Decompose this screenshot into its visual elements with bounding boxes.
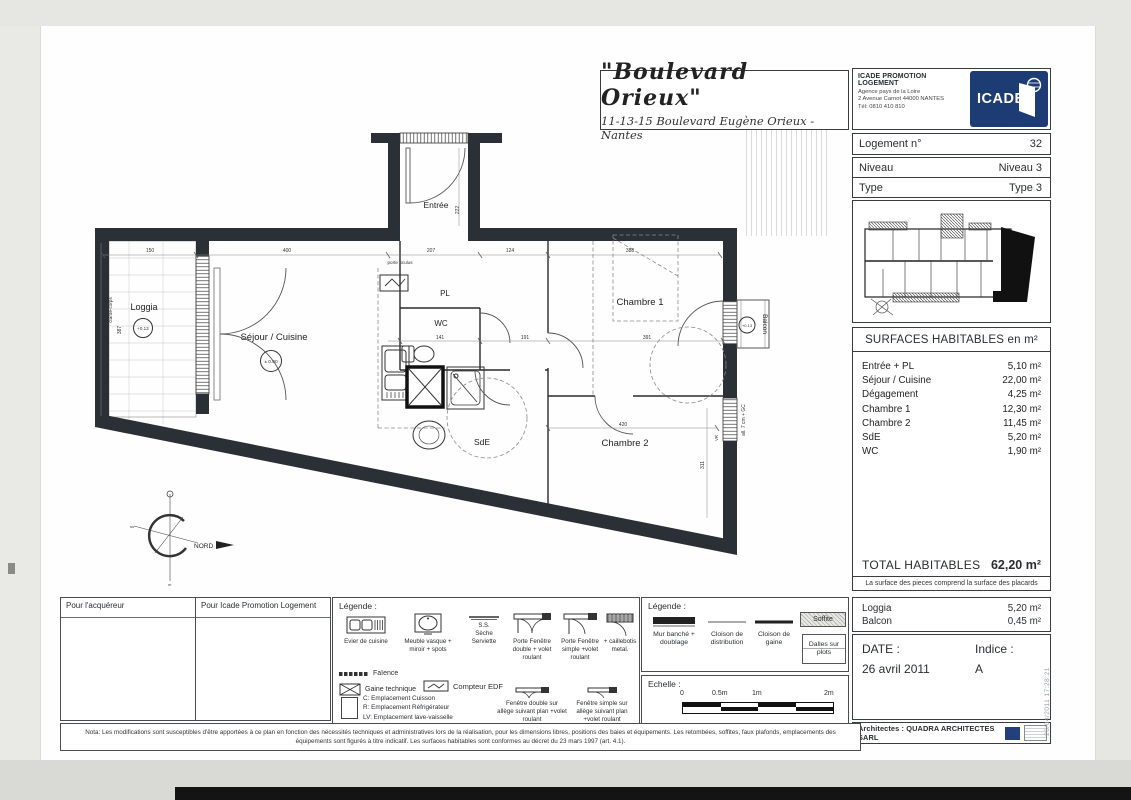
- room-chambre2: Chambre 2: [602, 438, 649, 449]
- legend-fenetre-double: Fenêtre double sur allège suivant plan +…: [497, 686, 567, 723]
- signature-icade: Pour Icade Promotion Logement: [195, 598, 330, 720]
- svg-text:m: m: [168, 582, 172, 587]
- signature-icade-label: Pour Icade Promotion Logement: [196, 598, 330, 618]
- fixtures: [380, 275, 484, 449]
- scale-box: Echelle : 0 0.5m 1m 2m: [641, 675, 849, 724]
- allege-label: all. 7 cm + GC: [741, 404, 747, 436]
- signature-buyer-label: Pour l'acquéreur: [61, 598, 195, 618]
- architects-bar: Architectes : QUADRA ARCHITECTES SARL: [852, 722, 1051, 744]
- french-door-simple-icon: [562, 612, 598, 636]
- legend-pf-double: Porte Fenêtre double + volet roulant: [509, 612, 555, 661]
- promoter-block: ICADE PROMOTION LOGEMENT Agence pays de …: [852, 68, 1051, 130]
- svg-text:124: 124: [506, 248, 515, 254]
- keyplan-drawing: [853, 201, 1047, 319]
- room-sejour: Séjour / Cuisine: [240, 332, 307, 343]
- north-arrow: [216, 541, 234, 549]
- legend-vasque: Meuble vasque + miroir + spots: [397, 612, 459, 654]
- scale-labels: 0 0.5m 1m 2m: [642, 690, 848, 699]
- legend-caillebotis: + caillebotis metal.: [603, 612, 637, 654]
- surface-row: SdE5,20 m²: [862, 432, 1041, 443]
- floor-plan-drawing: 150 400 207 124 388 141 191 391 420 222 …: [55, 118, 847, 600]
- scanned-floor-plan-sheet: { "colors": { "brand_blue": "#1e3c74", "…: [0, 0, 1131, 800]
- toilet: [414, 346, 434, 362]
- logement-value: 32: [1030, 138, 1050, 150]
- wardrobe-dashed: [613, 235, 678, 321]
- date-indice-box: DATE : Indice : 26 avril 2011 A: [852, 634, 1051, 720]
- tile-line-icon: [339, 671, 369, 677]
- legend-dalles: Dalles sur plots: [802, 634, 846, 664]
- annex-row: Balcon0,45 m²: [853, 615, 1050, 628]
- legend-compteur: Compteur EDF: [423, 680, 503, 692]
- annex-surfaces-box: Loggia5,20 m² Balcon0,45 m²: [852, 597, 1051, 632]
- scale-bar: [682, 702, 834, 714]
- svg-text:207: 207: [427, 248, 436, 254]
- room-balcon: Balcon: [761, 314, 768, 334]
- surface-row: Séjour / Cuisine22,00 m²: [862, 375, 1041, 386]
- niveau-type-fields: Niveau Niveau 3 Type Type 3: [852, 157, 1051, 198]
- signature-buyer: Pour l'acquéreur: [61, 598, 195, 720]
- architects-name: Architectes : QUADRA ARCHITECTES SARL: [853, 724, 1005, 742]
- legend-pf-simple: Porte Fenêtre simple +volet roulant: [557, 612, 603, 661]
- scan-edge-top: [0, 0, 1131, 26]
- partitions: [400, 241, 723, 505]
- surfaces-table: SURFACES HABITABLES en m² Entrée + PL5,1…: [852, 327, 1051, 591]
- type-field: Type Type 3: [853, 177, 1050, 197]
- legend-cloison-distribution: Cloison de distribution: [704, 616, 750, 647]
- room-loggia: Loggia: [130, 302, 157, 312]
- room-pl: PL: [440, 289, 450, 298]
- garde-corps-label: Garde-corps: [108, 297, 113, 323]
- legend-seche: S.S. Sèche Serviette: [463, 614, 505, 646]
- partition-icon: [706, 616, 748, 628]
- print-timestamp: 26/04/2011 17:28:21: [1042, 636, 1052, 766]
- icade-door-icon: [1016, 77, 1042, 119]
- svg-text:222: 222: [455, 206, 461, 215]
- date-value: 26 avril 2011: [862, 662, 930, 676]
- legend-cloison-gaine: Cloison de gaine: [752, 616, 796, 647]
- metal-grate-icon: [605, 612, 635, 636]
- promoter-phone: Tél: 0810 410 810: [858, 104, 966, 110]
- keyplan-compass-icon: [871, 299, 893, 315]
- surface-row: Chambre 211,45 m²: [862, 418, 1041, 429]
- surfaces-title: SURFACES HABITABLES en m²: [853, 328, 1050, 352]
- sink-icon: [346, 614, 386, 636]
- nota-text: Nota: Les modifications sont susceptible…: [60, 723, 861, 751]
- date-label: DATE :: [862, 642, 900, 656]
- svg-text:+0.13: +0.13: [137, 326, 149, 331]
- legend-evier: Evier de cuisine: [337, 614, 395, 646]
- keyplan-box: [852, 200, 1051, 323]
- svg-text:150: 150: [146, 248, 155, 254]
- towel-dryer-icon: S.S.: [467, 614, 501, 628]
- svg-text:400: 400: [283, 248, 292, 254]
- svg-text:387: 387: [117, 326, 123, 335]
- dashed-furniture: [378, 235, 726, 458]
- washbasin-icon: [413, 612, 443, 636]
- architect-stamp-blue: [1005, 727, 1020, 740]
- north-compass: so m NORD: [130, 491, 234, 587]
- vr-label: VR: [714, 435, 719, 441]
- room-chambre1: Chambre 1: [617, 297, 664, 308]
- surfaces-total-value: 62,20 m²: [991, 558, 1041, 572]
- room-entree: Entrée: [423, 200, 448, 210]
- legend-fenetre-simple: Fenêtre simple sur allège suivant plan +…: [569, 686, 635, 723]
- annex-row: Loggia5,20 m²: [853, 602, 1050, 615]
- walls: [95, 133, 737, 555]
- duct-wall-icon: [753, 616, 795, 628]
- svg-text:191: 191: [521, 335, 530, 341]
- room-sde: SdE: [474, 437, 490, 447]
- legend-fixtures: Légende : Evier de cuisine Meuble vasque…: [332, 597, 640, 725]
- legend-fixtures-title: Légende :: [339, 601, 377, 611]
- svg-text:± 0.00: ± 0.00: [264, 359, 278, 365]
- legend-soffite: Soffite: [800, 612, 846, 627]
- promoter-text: ICADE PROMOTION LOGEMENT Agence pays de …: [853, 69, 968, 129]
- appliance-box-icon: [341, 697, 358, 719]
- svg-text:388: 388: [626, 248, 635, 254]
- surface-row: Dégagement4,25 m²: [862, 389, 1041, 400]
- niveau-field: Niveau Niveau 3: [853, 158, 1050, 177]
- edf-meter-icon: [423, 680, 449, 692]
- surfaces-rows: Entrée + PL5,10 m² Séjour / Cuisine22,00…: [853, 352, 1050, 460]
- nord-label: NORD: [194, 543, 213, 550]
- svg-text:420: 420: [619, 422, 628, 428]
- surface-row: Chambre 112,30 m²: [862, 404, 1041, 415]
- surface-row: Entrée + PL5,10 m²: [862, 361, 1041, 372]
- type-label: Type: [853, 182, 883, 194]
- scan-artifact-mark: [8, 563, 15, 574]
- promoter-name: ICADE PROMOTION LOGEMENT: [858, 73, 966, 87]
- svg-text:311: 311: [700, 461, 706, 469]
- surface-row: WC1,90 m²: [862, 446, 1041, 457]
- promoter-address: 2 Avenue Carnot 44000 NANTES: [858, 96, 966, 102]
- basin: [413, 421, 445, 449]
- level-values: +0.13 ± 0.00 +0.13: [137, 323, 753, 365]
- turning-circle-ch1: [650, 327, 726, 403]
- svg-text:391: 391: [643, 335, 652, 341]
- promoter-agency: Agence pays de la Loire: [858, 89, 966, 95]
- logement-field: Logement n° 32: [852, 133, 1051, 155]
- svg-text:S.S.: S.S.: [478, 623, 490, 628]
- windows: [196, 133, 737, 441]
- legend-mur-banche: Mur banché + doublage: [650, 616, 698, 647]
- surfaces-total-label: TOTAL HABITABLES: [862, 558, 980, 572]
- surfaces-footnote: La surface des pieces comprend la surfac…: [853, 576, 1050, 590]
- duct-icon: [339, 683, 361, 696]
- scale-title: Echelle :: [648, 679, 681, 689]
- indice-value: A: [975, 662, 983, 676]
- surfaces-total-row: TOTAL HABITABLES 62,20 m²: [853, 558, 1050, 576]
- room-wc: WC: [434, 319, 448, 328]
- window-double-icon: [514, 686, 550, 698]
- window-simple-icon: [586, 686, 618, 698]
- logement-label: Logement n°: [853, 138, 922, 150]
- load-wall-icon: [652, 616, 696, 628]
- kitchen-sink: [382, 346, 409, 400]
- porte-oculus-label: porte oculus: [387, 260, 413, 265]
- niveau-value: Niveau 3: [999, 162, 1050, 174]
- edf-meter: [380, 275, 408, 291]
- svg-text:+0.13: +0.13: [742, 323, 753, 328]
- indice-label: Indice :: [975, 642, 1014, 656]
- legend-walls-title: Légende :: [648, 601, 686, 611]
- scan-edge-right: [1096, 0, 1131, 800]
- legend-faience: Faïence: [339, 670, 398, 677]
- svg-text:141: 141: [436, 335, 445, 341]
- signature-boxes: Pour l'acquéreur Pour Icade Promotion Lo…: [60, 597, 331, 721]
- french-door-double-icon: [512, 612, 552, 636]
- dimension-lines: [101, 148, 725, 518]
- svg-text:so: so: [130, 524, 135, 529]
- legend-walls: Légende : Mur banché + doublage Cloison …: [641, 597, 849, 672]
- project-title: "Boulevard Orieux": [601, 59, 848, 111]
- scan-shadow-strip: [175, 787, 1131, 800]
- type-value: Type 3: [1009, 182, 1050, 194]
- niveau-label: Niveau: [853, 162, 893, 174]
- icade-logo: ICADE: [970, 71, 1048, 127]
